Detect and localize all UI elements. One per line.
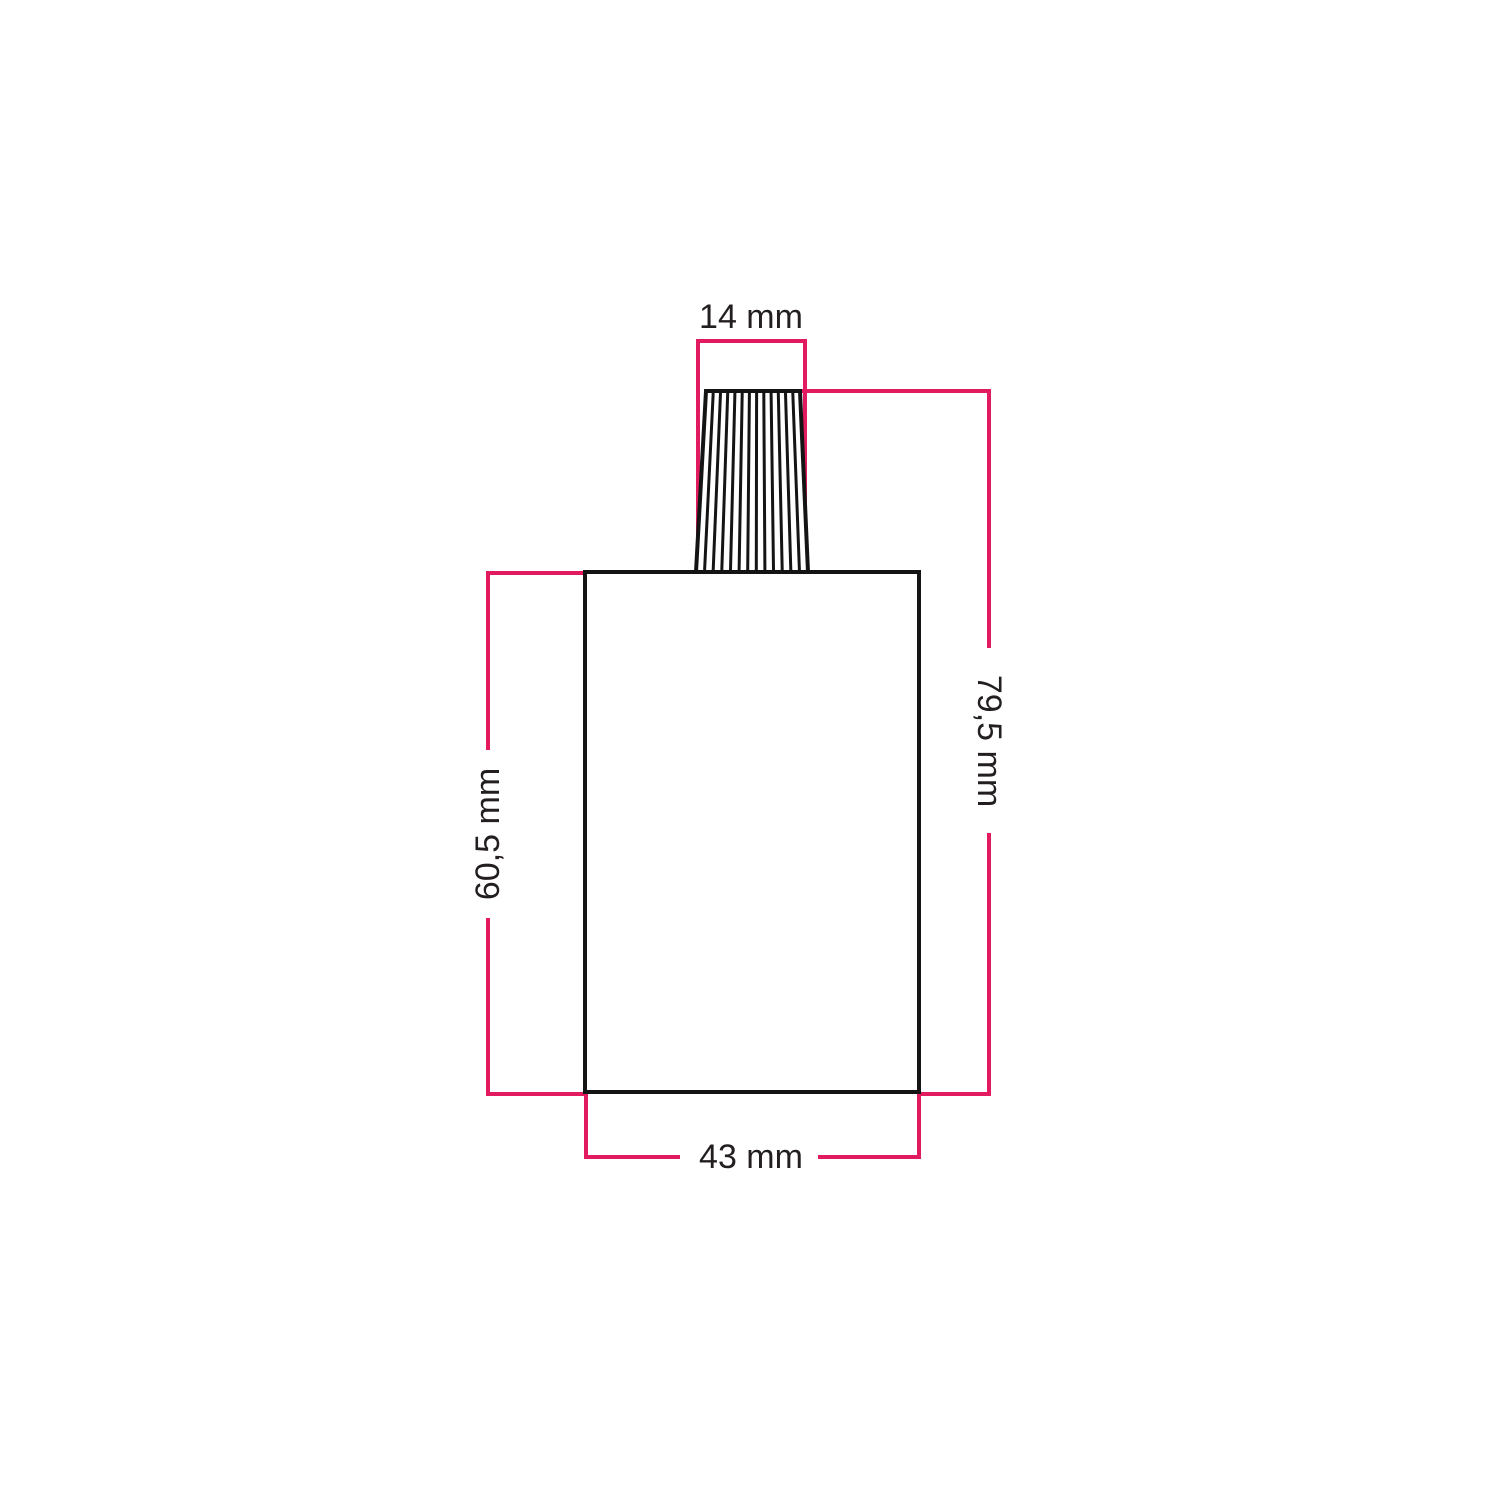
body-width-left-line <box>586 1092 680 1157</box>
body-width-label: 43 mm <box>699 1138 803 1176</box>
body-height-label: 60,5 mm <box>469 768 507 900</box>
body-height-top-line <box>488 573 585 750</box>
cable-grip-cone <box>696 391 808 572</box>
lampholder-body-outline <box>585 572 919 1092</box>
body-width-right-line <box>818 1092 919 1157</box>
overall-height-label: 79,5 mm <box>970 675 1008 807</box>
body-height-bottom-line <box>488 918 585 1094</box>
overall-height-bottom-line <box>919 833 989 1094</box>
grip-top-width-label: 14 mm <box>699 298 803 336</box>
dimension-diagram: 14 mm 79,5 mm 60,5 mm 43 mm <box>0 0 1500 1500</box>
diagram-canvas: 14 mm 79,5 mm 60,5 mm 43 mm <box>0 0 1500 1500</box>
